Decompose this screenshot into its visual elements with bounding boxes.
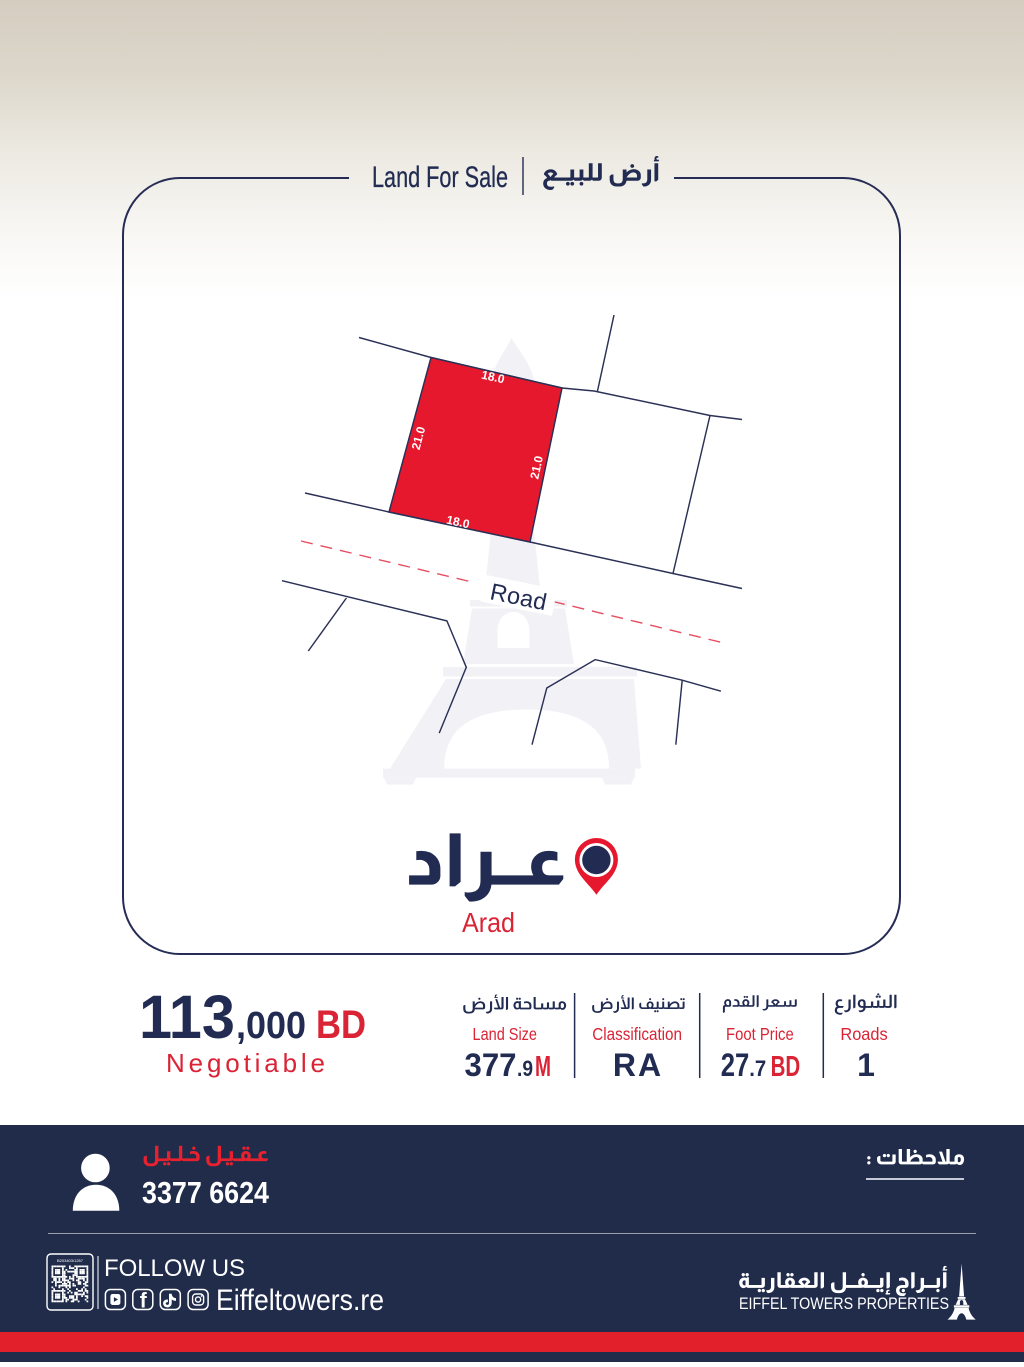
svg-text:BD: BD: [771, 1051, 801, 1083]
svg-text:Negotiable: Negotiable: [166, 1048, 331, 1078]
svg-text:3377 6624: 3377 6624: [142, 1175, 270, 1210]
svg-text:377: 377: [465, 1047, 517, 1083]
svg-text:113: 113: [139, 983, 235, 1051]
svg-text:Roads: Roads: [840, 1024, 888, 1044]
svg-text:RA: RA: [613, 1047, 663, 1083]
svg-text:,000: ,000: [236, 1005, 306, 1047]
svg-text:BD: BD: [316, 1003, 366, 1047]
svg-text:Arad: Arad: [462, 907, 515, 938]
svg-text:Foot Price: Foot Price: [726, 1024, 794, 1044]
svg-text:FOLLOW US: FOLLOW US: [104, 1255, 245, 1282]
svg-text:B203403/1257: B203403/1257: [57, 1258, 84, 1263]
svg-text:.9: .9: [517, 1056, 533, 1081]
svg-text:f: f: [140, 1290, 148, 1313]
svg-text:Classification: Classification: [592, 1024, 682, 1044]
svg-text:M: M: [535, 1051, 551, 1083]
svg-text:EIFFEL TOWERS PROPERTIES: EIFFEL TOWERS PROPERTIES: [739, 1295, 949, 1313]
svg-text:Land Size: Land Size: [473, 1024, 538, 1044]
svg-text:.7: .7: [749, 1056, 766, 1081]
svg-text:Land For Sale: Land For Sale: [372, 161, 508, 194]
svg-text:27: 27: [721, 1047, 750, 1083]
svg-text:Eiffeltowers.re: Eiffeltowers.re: [216, 1284, 384, 1317]
svg-text:1: 1: [857, 1047, 875, 1083]
